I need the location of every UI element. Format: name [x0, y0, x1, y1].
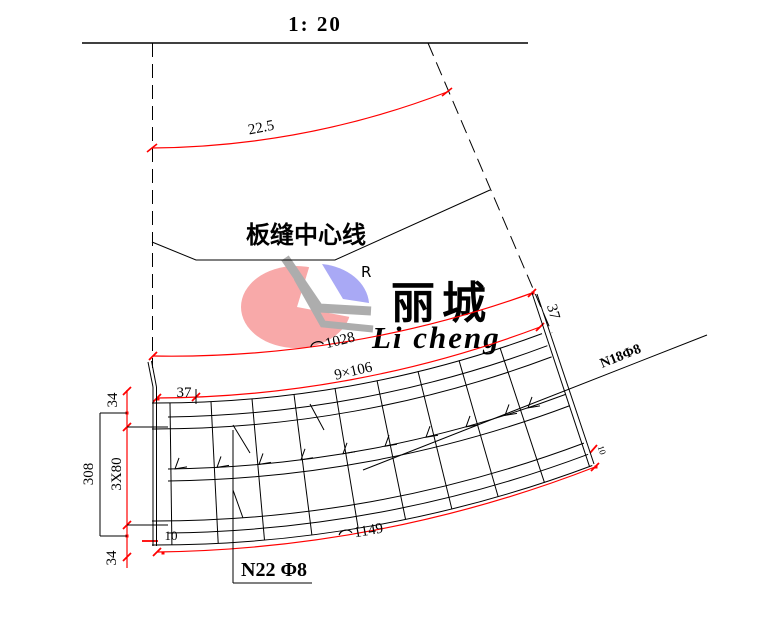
red-arc-22-5 [152, 92, 447, 148]
scale-title: 1: 20 [288, 12, 342, 36]
bar-label-n18: N18Φ8 [598, 342, 643, 372]
logo-registered-mark: R [361, 263, 371, 281]
dim-text-34-top: 34 [105, 392, 121, 408]
band-bar-arc [168, 394, 566, 469]
dim-text-34-bottom: 34 [104, 550, 120, 566]
bar-label-n22: N22 Φ8 [241, 559, 307, 581]
callout-n22: N22 Φ8 [233, 430, 312, 583]
band-bar-arc [168, 346, 547, 417]
dim-arc-length-1149: 1149 [338, 520, 385, 543]
dim-text-308: 308 [81, 463, 97, 486]
logo-name-english: Li cheng [371, 320, 501, 355]
dim-tick [442, 88, 452, 96]
cad-drawing-sheet: R 丽城 Li cheng 1: 20 板缝中心线 22.5 [0, 0, 770, 623]
dim-text-10-right: 10 [596, 444, 608, 456]
drawing-canvas: R 丽城 Li cheng 1: 20 板缝中心线 22.5 [0, 0, 770, 623]
callout-n18: N18Φ8 [363, 335, 707, 470]
dim-text-22-5: 22.5 [247, 118, 276, 139]
dim-text-37-left: 37 [177, 385, 193, 401]
logo-mark: R 丽城 Li cheng [241, 248, 501, 355]
n18-leader-line [363, 335, 707, 470]
red-arc-outer-bottom [157, 467, 595, 552]
dim-text-3x80: 3X80 [109, 457, 125, 490]
band-arcs [152, 334, 592, 545]
joint-center-line-label: 板缝中心线 [246, 221, 366, 249]
dim-arc-22-5: 22.5 [147, 88, 452, 152]
band-bar-arc [168, 406, 570, 481]
dim-text-10-left: 10 [165, 528, 178, 543]
